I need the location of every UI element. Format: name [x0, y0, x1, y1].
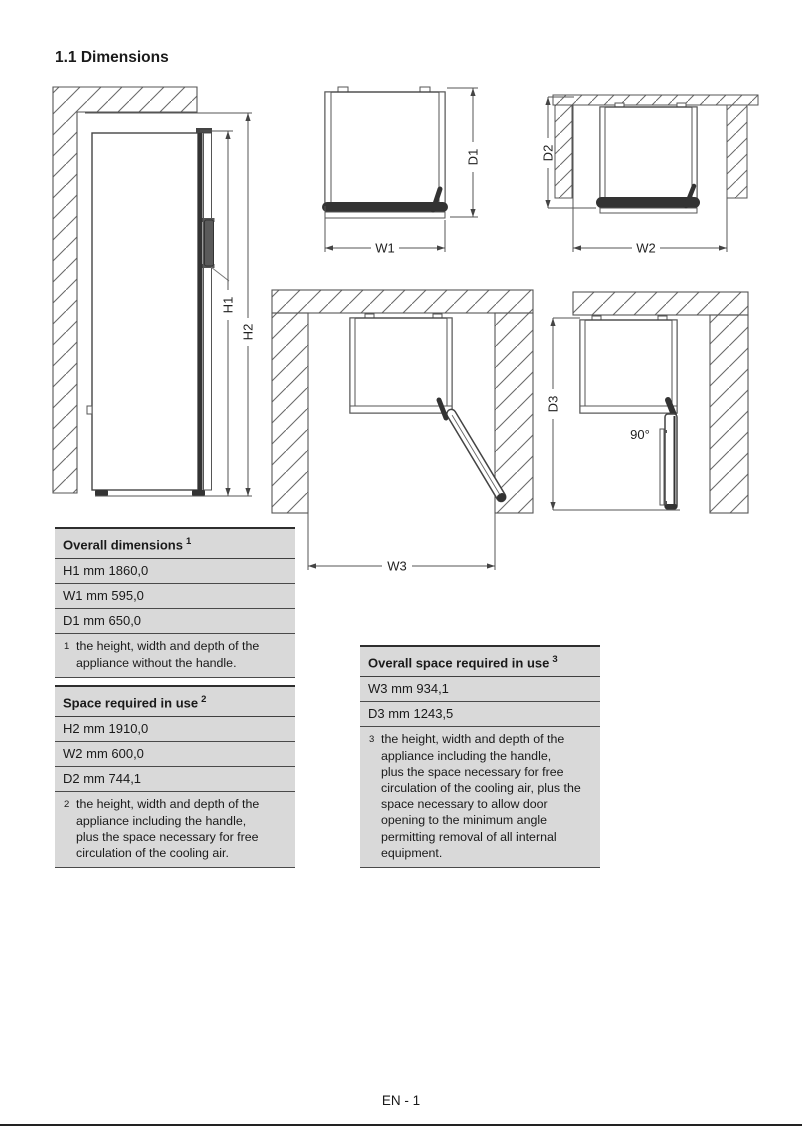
- d1-label: D1: [466, 149, 481, 166]
- table-row: W2 mm 600,0: [55, 742, 295, 767]
- fridge-top-view: [350, 314, 452, 413]
- table-title: Overall space required in use: [368, 655, 549, 670]
- w1-label: W1: [375, 241, 395, 256]
- fridge-feet: [95, 490, 205, 496]
- d3-label: D3: [546, 396, 561, 413]
- footnote-sup: 2: [64, 797, 69, 813]
- h2-label: H2: [241, 324, 256, 341]
- page-number: EN - 1: [0, 1093, 802, 1108]
- manual-page: { "page": { "title": "1.1 Dimensions", "…: [0, 0, 802, 1136]
- door-open-90-diagram: 90° D3: [540, 283, 755, 521]
- h1-label: H1: [221, 297, 236, 314]
- w3-label: W3: [387, 559, 407, 574]
- door-handle: [660, 429, 664, 505]
- dimension-d1: D1: [447, 88, 481, 217]
- side-view-diagram: H1 H2: [45, 80, 260, 505]
- table-row: D3 mm 1243,5: [360, 702, 600, 727]
- table-title-sup: 3: [552, 654, 557, 665]
- fridge-top-view: [580, 316, 677, 413]
- table-header: Overall space required in use3: [360, 647, 600, 677]
- table-row: H2 mm 1910,0: [55, 717, 295, 742]
- footnote-line: the height, width and depth of the appli…: [381, 731, 592, 763]
- table-header: Overall dimensions1: [55, 529, 295, 559]
- table-footnote: 2 the height, width and depth of the app…: [55, 792, 295, 867]
- footnote-sup: 1: [64, 639, 69, 655]
- footnote-line: plus the space necessary for free circul…: [76, 829, 287, 861]
- table-row: W3 mm 934,1: [360, 677, 600, 702]
- footnote-line: plus the space necessary for free circul…: [381, 764, 592, 861]
- space-required-table: Space required in use2 H2 mm 1910,0 W2 m…: [55, 685, 295, 868]
- wall-spacer: [87, 406, 92, 414]
- door-handle: [203, 218, 215, 268]
- niche-top-view-diagram: D2 W2: [528, 85, 763, 265]
- w2-label: W2: [636, 241, 656, 256]
- footnote-line: the height, width and depth of the appli…: [76, 638, 287, 670]
- footnote-line: the height, width and depth of the appli…: [76, 796, 287, 828]
- table-title-sup: 1: [186, 536, 191, 547]
- page-bottom-rule: [0, 1124, 802, 1126]
- table-footnote: 3 the height, width and depth of the app…: [360, 727, 600, 867]
- door-closed: [322, 202, 448, 212]
- footnote-sup: 3: [369, 732, 374, 748]
- table-title: Overall dimensions: [63, 537, 183, 552]
- overall-space-table: Overall space required in use3 W3 mm 934…: [360, 645, 600, 868]
- table-title: Space required in use: [63, 695, 198, 710]
- table-row: W1 mm 595,0: [55, 584, 295, 609]
- table-header: Space required in use2: [55, 687, 295, 717]
- top-view-diagram: D1 W1: [300, 80, 485, 260]
- fridge-side-view: [87, 128, 229, 496]
- handle-leader-line: [211, 267, 229, 281]
- overall-dimensions-table: Overall dimensions1 H1 mm 1860,0 W1 mm 5…: [55, 527, 295, 678]
- table-footnote: 1 the height, width and depth of the app…: [55, 634, 295, 676]
- page-title: 1.1 Dimensions: [55, 49, 169, 67]
- d2-label: D2: [541, 145, 556, 162]
- door-open-wide-diagram: W3: [265, 283, 537, 577]
- table-row: H1 mm 1860,0: [55, 559, 295, 584]
- dimension-w3: W3: [308, 513, 495, 574]
- table-row: D1 mm 650,0: [55, 609, 295, 634]
- fridge-top-view: [596, 103, 700, 213]
- angle-label: 90°: [630, 427, 650, 442]
- table-row: D2 mm 744,1: [55, 767, 295, 792]
- fridge-top-view: [322, 87, 448, 218]
- table-title-sup: 2: [201, 694, 206, 705]
- door-open-90: [660, 400, 677, 509]
